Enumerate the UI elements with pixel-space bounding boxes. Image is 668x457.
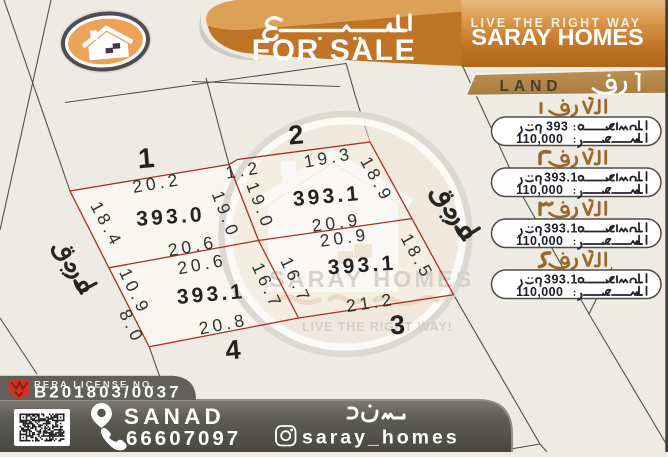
svg-text:110,000: 110,000 (516, 234, 563, 248)
svg-text:SANAD: SANAD (124, 404, 225, 429)
svg-text:LIVE THE RIGHT WAY!: LIVE THE RIGHT WAY! (302, 320, 453, 334)
svg-text:2: 2 (287, 119, 305, 150)
svg-text:110,000: 110,000 (516, 183, 563, 197)
svg-text:saray_homes: saray_homes (302, 427, 460, 449)
svg-text:3: 3 (389, 310, 406, 341)
svg-text:66607097: 66607097 (126, 427, 241, 450)
svg-text:LAND: LAND (499, 78, 562, 95)
svg-text:110,000: 110,000 (516, 132, 563, 146)
svg-text:393.1: 393.1 (327, 252, 397, 280)
svg-text:B201803/0037: B201803/0037 (34, 383, 182, 402)
svg-text:SARAY HOMES: SARAY HOMES (471, 24, 643, 50)
svg-text:4: 4 (224, 334, 242, 365)
svg-text:393.0: 393.0 (136, 203, 206, 231)
svg-text:1: 1 (137, 142, 155, 173)
svg-text:110,000: 110,000 (516, 285, 563, 299)
